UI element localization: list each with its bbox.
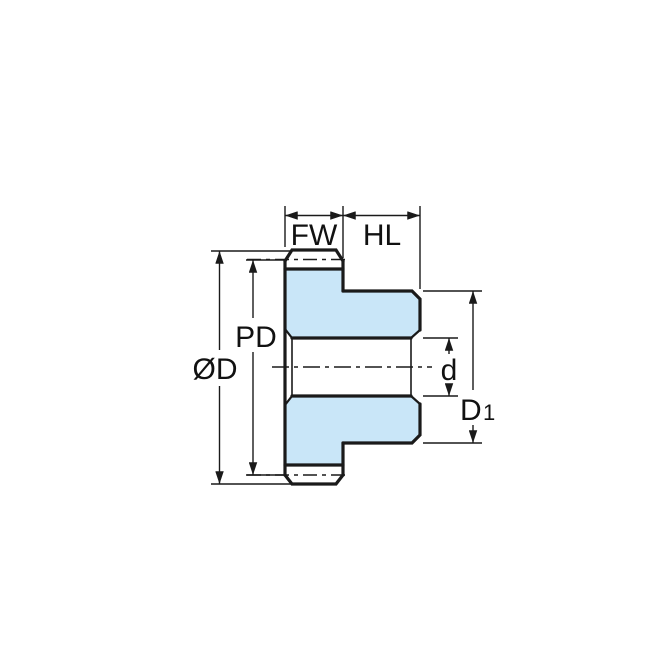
- gear-cross-section-drawing: FW HL PD ØD d D 1: [0, 0, 670, 670]
- tooth-tip-bottom: [285, 475, 343, 484]
- gear-lower-body: [285, 396, 420, 465]
- gear-drawing-canvas: FW HL PD ØD d D 1: [0, 0, 670, 670]
- d-label: d: [441, 354, 458, 387]
- pd-label: PD: [235, 321, 277, 354]
- fw-label: FW: [291, 219, 338, 252]
- d1-subscript: 1: [483, 400, 495, 425]
- od-label: ØD: [193, 353, 238, 386]
- hl-label: HL: [363, 219, 401, 252]
- d1-label: D: [460, 394, 482, 427]
- gear-upper-body: [285, 269, 420, 338]
